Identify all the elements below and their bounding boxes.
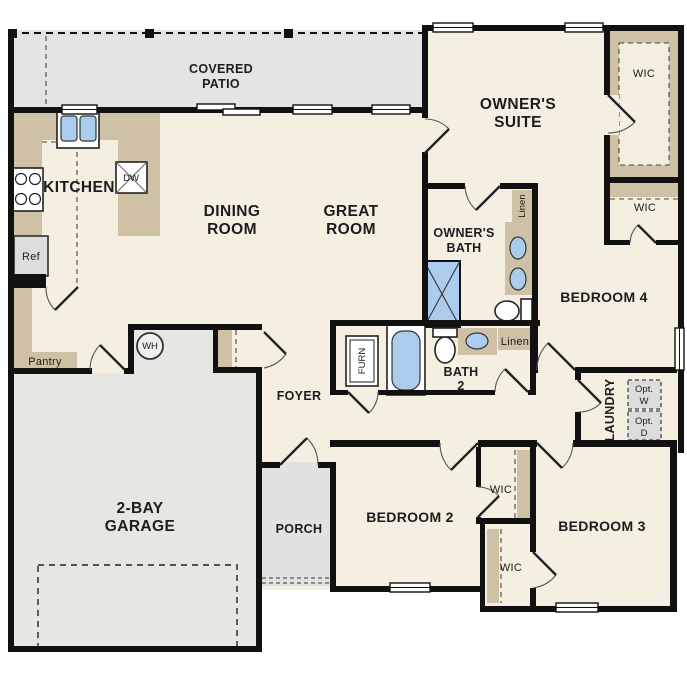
label-dishwasher: DW [123,173,139,184]
room-label-bath2: BATH [444,365,479,379]
room-label-garage: 2-BAY [116,500,163,517]
label-pantry: Pantry [28,356,62,368]
label-wic-bedroom4: WIC [634,202,656,214]
room-label-dining-room: DINING [204,203,261,220]
label-furnace: FURN [357,348,368,375]
coat-closet-rod [218,329,232,368]
room-label-porch: PORCH [276,522,323,536]
bedroom2-wic-rod [517,450,530,518]
label-linen-owners: Linen [517,194,528,217]
room-label-covered-patio: COVERED [189,62,253,76]
room-label-great-room: GREAT [323,203,378,220]
owners-shower [424,261,460,327]
garage-floor [10,327,262,652]
svg-text:PATIO: PATIO [202,77,240,91]
label-optional-washer: Opt. [635,384,653,395]
room-label-bedroom4: BEDROOM 4 [560,289,648,305]
svg-text:2: 2 [457,379,464,393]
range-stove [12,168,43,211]
svg-text:ROOM: ROOM [207,221,257,238]
label-linen-hall: Linen [501,336,529,348]
room-label-foyer: FOYER [277,389,322,403]
svg-text:ROOM: ROOM [326,221,376,238]
bedroom4-wic-shelf [608,183,680,197]
bath2-vanity-sink [466,333,488,349]
svg-text:SUITE: SUITE [494,114,542,131]
svg-text:GARAGE: GARAGE [105,518,175,535]
floor-plan: COVERED PATIO OWNER'S SUITE DINING ROOM … [0,0,687,687]
label-optional-dryer: Opt. [635,416,653,427]
floor-plan-drawing: COVERED PATIO OWNER'S SUITE DINING ROOM … [0,0,687,687]
room-label-bedroom2: BEDROOM 2 [366,509,454,525]
owners-suite-window-1 [433,23,473,32]
bedroom3-window [556,603,598,612]
svg-text:W: W [640,396,649,407]
bedroom3-wic-rod [487,529,499,603]
label-water-heater: WH [142,341,158,352]
label-wic-bedroom2: WIC [490,484,512,496]
room-label-owners-bath: OWNER'S [433,226,494,240]
great-room-window-2 [372,105,410,114]
svg-text:D: D [641,428,648,439]
label-wic-bedroom3: WIC [500,562,522,574]
kitchen-sink [57,110,99,148]
bath2-toilet [433,328,457,363]
svg-text:BATH: BATH [447,241,482,255]
room-label-laundry: LAUNDRY [603,378,617,441]
owners-suite-window-2 [565,23,603,32]
bedroom2-window [390,583,430,592]
bathtub [387,325,425,395]
room-label-owners-suite: OWNER'S [480,96,556,113]
room-label-bedroom3: BEDROOM 3 [558,518,646,534]
label-refrigerator: Ref [22,251,41,263]
label-wic-owners: WIC [633,68,655,80]
bedroom4-window [675,328,684,370]
kitchen-window [62,105,97,114]
owners-toilet [495,299,532,323]
room-label-kitchen: KITCHEN [43,179,115,196]
great-room-window-1 [293,105,332,114]
